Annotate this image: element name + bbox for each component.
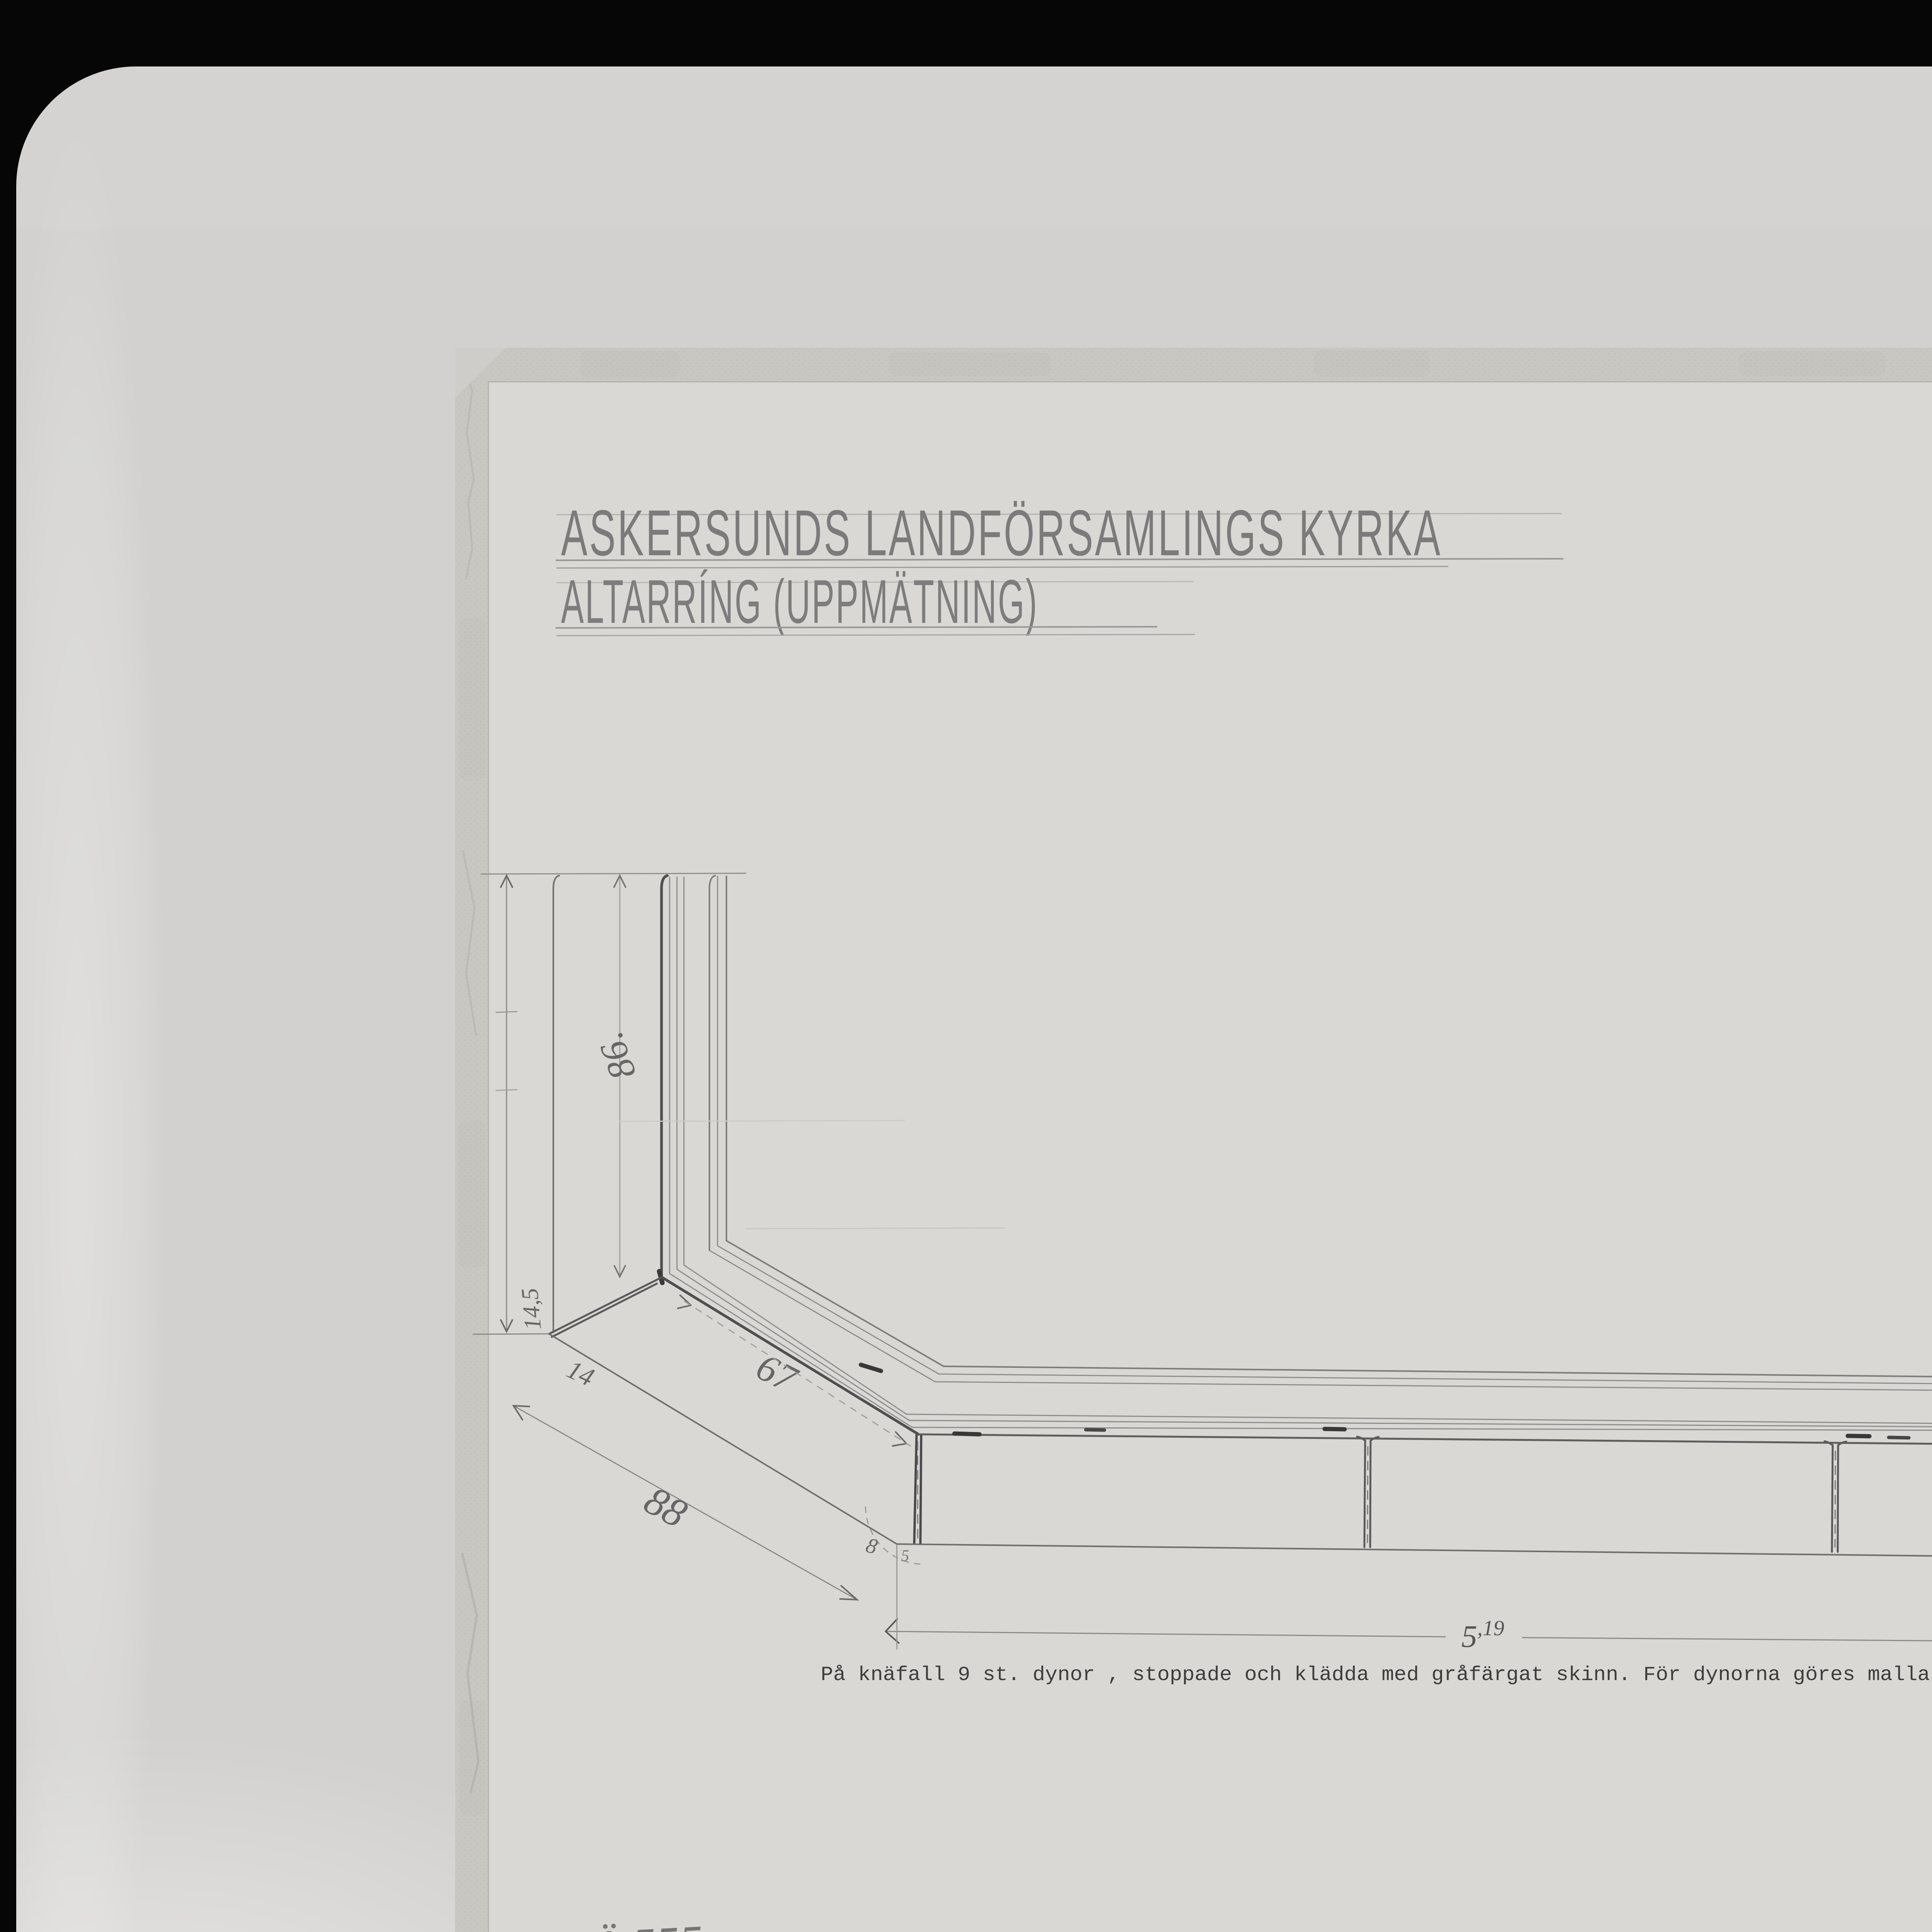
svg-text:14,5: 14,5 [517,1287,546,1331]
svg-text:5: 5 [901,1547,909,1565]
svg-text:ALTARRÍNG (UPPMÄTNING): ALTARRÍNG (UPPMÄTNING) [561,567,1038,636]
svg-text:På knäfall 9 st. dynor , stopp: På knäfall 9 st. dynor , stoppade och kl… [821,1663,1932,1686]
